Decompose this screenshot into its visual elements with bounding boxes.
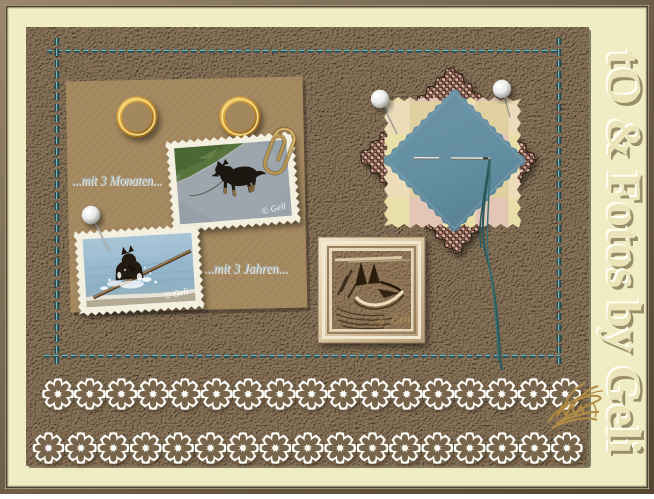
- svg-text:Geli: Geli: [391, 313, 411, 327]
- svg-text:tO & Fotos by Geli: tO & Fotos by Geli: [597, 50, 650, 454]
- svg-text:...mit 3 Jahren...: ...mit 3 Jahren...: [204, 261, 288, 277]
- svg-text:©: ©: [377, 317, 384, 327]
- svg-text:...mit 3 Monaten...: ...mit 3 Monaten...: [72, 173, 162, 189]
